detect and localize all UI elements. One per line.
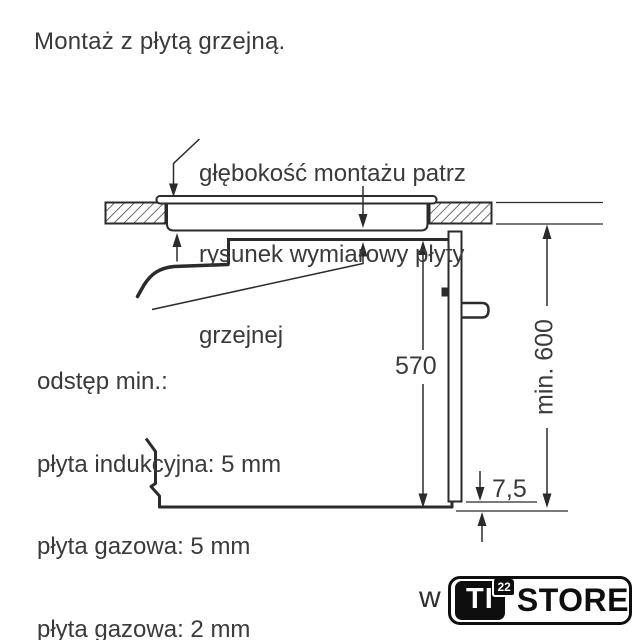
store-logo: TI 22 STORE	[448, 576, 632, 625]
worktop-extension-lines	[496, 203, 603, 225]
depth-annotation-line2: rysunek wymiarowy płyty	[199, 241, 466, 268]
worktop-left-section	[106, 203, 166, 224]
store-logo-badge-sup: 22	[492, 579, 513, 597]
store-logo-text: STORE	[517, 582, 629, 619]
gap-annotation: odstęp min.: płyta indukcyjna: 5 mm płyt…	[37, 313, 281, 640]
dimension-min-600-label: min. 600	[531, 319, 560, 415]
watermark-prefix: w	[419, 581, 441, 615]
gap-annotation-gas2: płyta gazowa: 2 mm	[37, 616, 281, 640]
dimension-7-5-label: 7,5	[492, 475, 527, 504]
depth-annotation-line1: głębokość montażu patrz	[199, 160, 466, 187]
gap-annotation-heading: odstęp min.:	[37, 368, 281, 396]
manual-page: Montaż z płytą grzejną. głębokość montaż…	[0, 0, 640, 640]
page-title: Montaż z płytą grzejną.	[34, 28, 285, 56]
store-logo-badge-text: TI	[466, 583, 494, 618]
gap-annotation-induction: płyta indukcyjna: 5 mm	[37, 451, 281, 479]
gap-annotation-gas1: płyta gazowa: 5 mm	[37, 533, 281, 561]
store-logo-badge: TI 22	[455, 581, 505, 620]
dimension-570-label: 570	[395, 352, 437, 381]
